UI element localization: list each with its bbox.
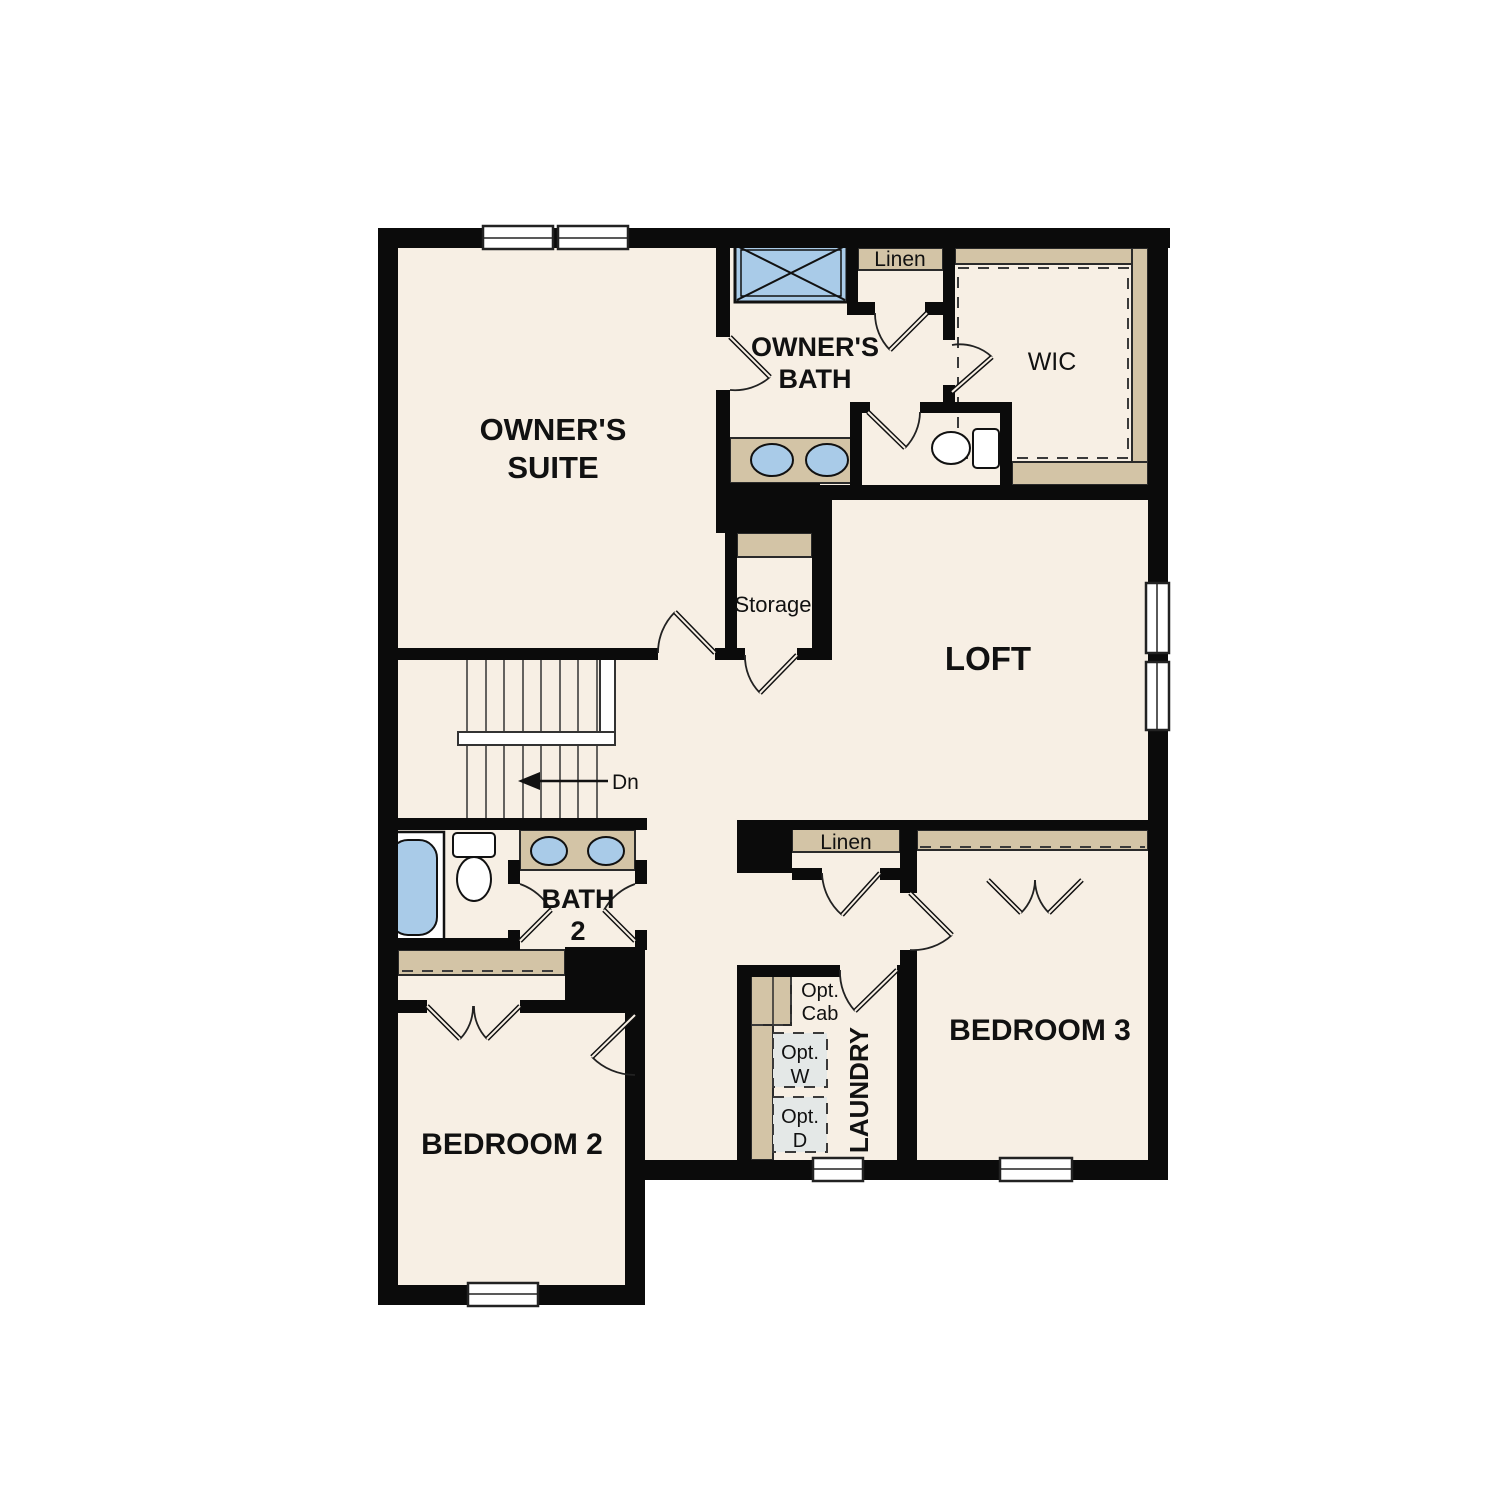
wall	[812, 497, 832, 660]
wall	[398, 818, 647, 830]
laundry-cabinet	[751, 972, 791, 1025]
shower-icon	[735, 244, 847, 302]
wall	[900, 830, 917, 893]
room-label-bedroom2: BEDROOM 2	[421, 1128, 603, 1161]
wic-shelf-bottom	[1012, 462, 1148, 485]
window-icon	[1146, 662, 1169, 730]
wall	[520, 1000, 565, 1013]
sink-icon	[588, 837, 624, 865]
wic-shelf-right	[1132, 248, 1148, 483]
bedroom3-closet-shelf	[917, 830, 1148, 850]
wall	[398, 648, 658, 660]
wall	[716, 390, 730, 490]
wall	[383, 1000, 427, 1013]
window-icon	[558, 226, 628, 249]
room-label-owners-suite: SUITE	[507, 450, 598, 485]
room-label-owners-suite: OWNER'S	[480, 412, 627, 447]
room-label-owners-bath: BATH	[779, 364, 852, 394]
room-label-bath2: 2	[570, 916, 585, 946]
laundry-counter-strip	[751, 1025, 773, 1160]
room-label-bedroom3: BEDROOM 3	[949, 1014, 1131, 1047]
sink-icon	[806, 444, 848, 476]
label-opt-washer: Opt.	[781, 1042, 819, 1064]
window-icon	[813, 1158, 863, 1181]
wall	[925, 302, 955, 315]
window-icon	[1146, 583, 1169, 653]
wall	[920, 402, 1012, 413]
wall	[625, 1013, 645, 1305]
bath2-toilet-icon	[453, 833, 495, 901]
label-opt-cab: Cab	[802, 1003, 839, 1025]
room-label-bath2: BATH	[542, 884, 615, 914]
label-opt-dryer: D	[793, 1130, 807, 1152]
label-opt-cab: Opt.	[801, 980, 839, 1002]
wall	[508, 930, 520, 950]
stairs-landing	[458, 732, 615, 745]
wall	[897, 965, 917, 1160]
room-label-wic: WIC	[1028, 348, 1077, 376]
label-opt-dryer: Opt.	[781, 1106, 819, 1128]
window-icon	[1000, 1158, 1072, 1181]
wall	[716, 248, 730, 337]
room-label-loft: LOFT	[945, 640, 1031, 677]
wall	[847, 248, 858, 302]
wall	[737, 820, 1168, 830]
sink-icon	[751, 444, 793, 476]
wall	[625, 1160, 1168, 1180]
wall	[792, 868, 822, 880]
wall	[1000, 402, 1012, 498]
wall	[383, 938, 518, 950]
floor-plan-canvas: OWNER'S SUITE OWNER'S BATH WIC Linen Lin…	[0, 0, 1500, 1500]
window-icon	[468, 1283, 538, 1306]
wall	[635, 860, 647, 884]
floor-plan-page: OWNER'S SUITE OWNER'S BATH WIC Linen Lin…	[0, 0, 1500, 1500]
window-icon	[483, 226, 553, 249]
label-linen-hall: Linen	[820, 831, 871, 854]
room-label-owners-bath: OWNER'S	[751, 332, 879, 362]
label-stairs-dn: Dn	[612, 771, 639, 794]
label-linen-top: Linen	[874, 248, 925, 271]
label-opt-washer: W	[791, 1066, 810, 1088]
wall	[943, 248, 955, 340]
wall	[565, 947, 645, 1013]
wall	[847, 302, 875, 315]
storage-shelf	[737, 533, 812, 557]
wall	[943, 385, 955, 402]
label-storage: Storage	[734, 592, 811, 617]
wall	[716, 485, 1150, 500]
room-label-laundry: LAUNDRY	[844, 1027, 874, 1153]
wall	[737, 965, 751, 1160]
wic-shelf-top	[955, 248, 1148, 264]
floor-bedroom2	[388, 1170, 645, 1295]
wall	[797, 648, 832, 660]
wall	[850, 402, 862, 497]
sink-icon	[531, 837, 567, 865]
wall	[378, 228, 398, 1305]
wall	[508, 860, 520, 884]
wall	[737, 965, 840, 977]
